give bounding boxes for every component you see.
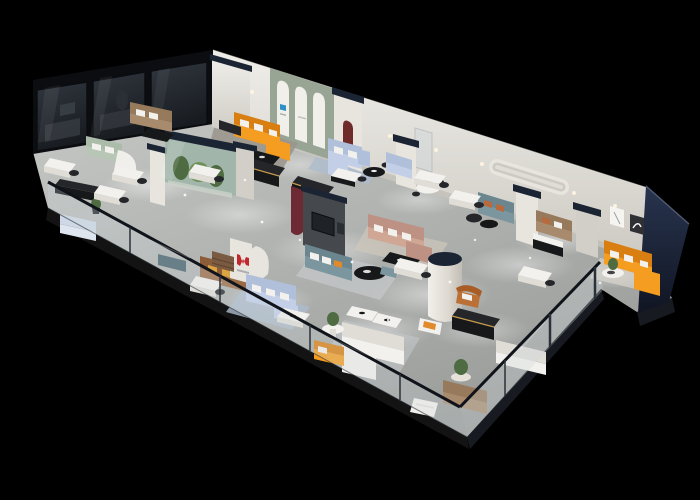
office-chair xyxy=(69,170,79,176)
table-plant xyxy=(327,312,339,326)
pier-column xyxy=(576,208,598,258)
downlight-glint xyxy=(299,239,301,241)
black-round-side-table xyxy=(480,220,498,228)
showroom-render-canvas xyxy=(0,0,700,500)
office-chair xyxy=(439,182,449,188)
downlight-glint xyxy=(529,257,531,259)
wall-sconce-light xyxy=(250,90,254,94)
downlight-glint xyxy=(261,221,264,224)
table-decor xyxy=(371,170,377,172)
downlight-glint xyxy=(449,281,452,284)
wall-sconce-light xyxy=(480,162,484,166)
arch-niche xyxy=(295,87,307,143)
wall-sconce-light xyxy=(434,148,438,152)
table-decor xyxy=(363,270,371,273)
downlight-glint xyxy=(351,261,354,264)
wall-sconce-light xyxy=(388,134,392,138)
office-chair xyxy=(474,202,484,208)
table-tray xyxy=(607,271,615,275)
arch-niche xyxy=(313,93,325,149)
downlight-glint xyxy=(387,319,389,321)
downlight-glint xyxy=(244,179,246,181)
table-plant xyxy=(608,258,618,270)
wall-art-small xyxy=(337,222,344,235)
table-decor xyxy=(259,156,265,158)
maroon-curved-panel xyxy=(291,186,303,235)
terrarium-right-pillar xyxy=(236,146,254,200)
east-navy-side-wall xyxy=(638,186,689,313)
downlight-glint xyxy=(474,239,476,241)
dining-chair xyxy=(358,176,367,181)
cylinder-column-top xyxy=(428,252,462,266)
downlight-glint xyxy=(184,194,187,197)
light-pool xyxy=(185,196,295,234)
office-chair xyxy=(421,272,431,278)
black-tub-chair xyxy=(466,214,482,223)
glass-divider xyxy=(415,128,432,172)
office-chair xyxy=(119,197,129,203)
office-chair xyxy=(214,176,224,182)
periwinkle-sofa-arm xyxy=(358,149,370,167)
wall-sconce-light xyxy=(572,191,576,195)
downlight-glint xyxy=(599,282,601,284)
isometric-showroom-illustration xyxy=(0,0,700,500)
table-plant xyxy=(454,359,468,375)
office-chair xyxy=(545,280,555,286)
meeting-room-plant-silhouette xyxy=(116,90,128,110)
office-chair xyxy=(137,178,147,184)
scene-layer xyxy=(33,50,689,449)
dining-chair xyxy=(412,192,420,197)
table-decor xyxy=(359,312,365,315)
